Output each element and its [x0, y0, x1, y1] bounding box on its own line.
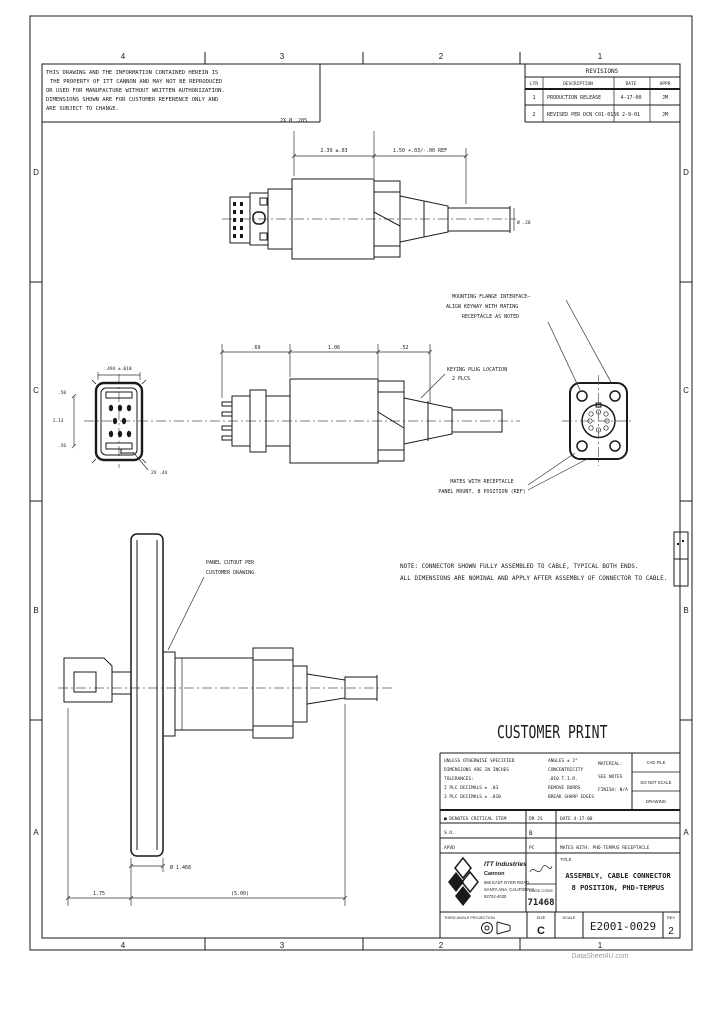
- material-line: FINISH: N/A: [598, 787, 628, 793]
- approval-rows: ■ DENOTES CRITICAL ITEM DR JS DATE 4-17-…: [444, 816, 650, 851]
- middle-view: .494 ±.010 .50 1.13 .56 2X .44: [53, 294, 634, 495]
- dim-1: .69: [251, 345, 260, 351]
- side-cell: CAD FILE: [647, 760, 666, 765]
- company-address: SANTA ANA, CALIFORNIA: [484, 887, 535, 892]
- face-dim-height: 1.13: [53, 418, 64, 424]
- tol-line: DIMENSIONS ARE IN INCHES: [444, 767, 509, 773]
- rev-date: 2-9-01: [622, 112, 640, 118]
- dim-a: 2.39 ±.03: [320, 148, 347, 154]
- rev-header-ltr: LTR: [530, 81, 538, 87]
- cage-code-value: 71468: [527, 898, 554, 908]
- face-dim-bot: .56: [58, 443, 66, 449]
- callout-line: 2 PLCS: [452, 376, 470, 382]
- dim-left: 1.75: [93, 891, 105, 897]
- row-cell: B: [529, 830, 533, 837]
- bottom-view: PANEL CUTOUT PER CUSTOMER DRAWING Ø 1.46…: [58, 534, 392, 906]
- panel-callout: PANEL CUTOUT PER CUSTOMER DRAWING: [168, 560, 255, 650]
- rev-value: 2: [668, 926, 674, 937]
- company-block: ITT Industries Cannon 666 EAST DYER ROAD…: [484, 861, 535, 899]
- title-block: UNLESS OTHERWISE SPECIFIED DIMENSIONS AR…: [440, 753, 680, 938]
- cable-dim: Ø .28: [517, 219, 531, 226]
- rev-header-date: DATE: [626, 81, 637, 87]
- company-name: ITT Industries: [484, 861, 527, 868]
- callout-line: MATES WITH RECEPTACLE: [450, 479, 513, 485]
- drawing-number: E2001-0029: [590, 920, 656, 933]
- cage-code-label: CAGE CODE: [529, 888, 553, 893]
- tol-line: REMOVE BURRS: [548, 785, 581, 791]
- flange-view: [562, 375, 634, 466]
- zone-left-a: A: [33, 828, 39, 837]
- callout-line: MOUNTING FLANGE INTERFACE—: [452, 294, 531, 300]
- drawing-title-line: 8 POSITION, PHD-TEMPUS: [572, 884, 665, 892]
- scale-label: SCALE: [562, 915, 575, 920]
- revisions-title: REVISIONS: [586, 68, 619, 75]
- drawing-title-line: ASSEMBLY, CABLE CONNECTOR: [565, 872, 671, 880]
- third-angle-projection-icon: [482, 922, 511, 934]
- callout-line: CUSTOMER DRAWING: [206, 570, 254, 576]
- signature-scribble: [530, 865, 552, 872]
- zone-bottom-1: 1: [598, 941, 603, 950]
- title-label: TITLE: [560, 857, 572, 862]
- rev-header-appr: APPR: [660, 81, 671, 87]
- projection-label: THIRD ANGLE PROJECTION: [444, 916, 495, 920]
- zone-left-c: C: [33, 386, 39, 395]
- mating-callout: MATES WITH RECEPTACLE PANEL MOUNT, 8 POS…: [438, 453, 589, 495]
- dim-b: 1.50 +.03/-.00 REF: [393, 148, 447, 154]
- company-address: 92702-4030: [484, 894, 507, 899]
- tol-line: TOLERANCES:: [444, 776, 474, 782]
- face-dim-width: .494 ±.010: [104, 366, 131, 372]
- row-cell: APVD: [444, 845, 455, 851]
- tol-line: ANGLES ± 2°: [548, 758, 578, 764]
- scan-watermark: DataSheet4U.com: [571, 953, 628, 960]
- revision-row: 2 REVISED PER DCN C01-0156 2-9-01 JM: [532, 112, 668, 118]
- customer-print-text: CUSTOMER PRINT: [497, 721, 608, 743]
- row-cell: PC: [529, 845, 535, 851]
- zone-right-c: C: [683, 386, 689, 395]
- zone-bottom-3: 3: [280, 941, 285, 950]
- general-notes: NOTE: CONNECTOR SHOWN FULLY ASSEMBLED TO…: [400, 563, 667, 582]
- rev-description: REVISED PER DCN C01-0156: [547, 112, 619, 118]
- company-address: 666 EAST DYER ROAD: [484, 880, 529, 885]
- tol-line: .010 T.I.R.: [548, 776, 578, 782]
- note-line: ARE SUBJECT TO CHANGE.: [46, 106, 119, 112]
- proprietary-note-box: THIS DRAWING AND THE INFORMATION CONTAIN…: [42, 64, 320, 122]
- zone-right-b: B: [683, 606, 688, 615]
- zone-left-b: B: [33, 606, 38, 615]
- rev-date: 4-17-00: [620, 95, 641, 101]
- tol-line: BREAK SHARP EDGES: [548, 794, 594, 800]
- zone-bottom-2: 2: [439, 941, 444, 950]
- callout-line: PANEL CUTOUT PER: [206, 560, 255, 566]
- dim-flange: Ø 1.468: [170, 864, 191, 871]
- zone-right-d: D: [683, 168, 689, 177]
- zone-top-2: 2: [439, 52, 444, 61]
- callout-line: PANEL MOUNT, 8 POSITION (REF): [438, 489, 525, 495]
- size-label: SIZE: [537, 915, 546, 920]
- tolerance-block: UNLESS OTHERWISE SPECIFIED DIMENSIONS AR…: [444, 758, 672, 804]
- rev-ltr: 1: [532, 95, 535, 101]
- dim-3: .52: [399, 345, 408, 351]
- dim-length: (5.00): [231, 891, 249, 897]
- note-line: THE PROPERTY OF ITT CANNON AND MAY NOT B…: [50, 79, 222, 85]
- revisions-table: REVISIONS LTR DESCRIPTION DATE APPR 1 PR…: [525, 64, 680, 122]
- note-line: THIS DRAWING AND THE INFORMATION CONTAIN…: [46, 70, 218, 76]
- material-line: MATERIAL:: [598, 761, 622, 767]
- rev-header-description: DESCRIPTION: [563, 81, 593, 87]
- rev-label: REV: [667, 915, 676, 920]
- revision-row: 1 PRODUCTION RELEASE 4-17-00 JM: [532, 95, 668, 101]
- general-note-line: NOTE: CONNECTOR SHOWN FULLY ASSEMBLED TO…: [400, 563, 638, 570]
- note-line: OR USED FOR MANUFACTURE WITHOUT WRITTEN …: [46, 88, 225, 94]
- hole-callout: 2X Ø .205: [280, 117, 307, 124]
- flange-callout: MOUNTING FLANGE INTERFACE— ALIGN KEYWAY …: [446, 294, 612, 390]
- company-logo: [448, 858, 478, 906]
- tol-line: 2 PLC DECIMALS ± .03: [444, 785, 498, 791]
- size-value: C: [537, 925, 545, 937]
- side-cell: DO NOT SCALE: [640, 780, 671, 785]
- rev-description: PRODUCTION RELEASE: [547, 95, 601, 101]
- row-cell: DATE 4-17-00: [560, 816, 593, 822]
- rev-appr: JM: [662, 112, 668, 118]
- dim-2: 1.06: [328, 345, 340, 351]
- tol-line: CONCENTRICITY: [548, 767, 584, 773]
- zone-bottom-4: 4: [121, 941, 126, 950]
- row-cell: MATES WITH: PHD-TEMPUS RECEPTACLE: [560, 845, 650, 851]
- row-cell: ■ DENOTES CRITICAL ITEM: [444, 816, 507, 822]
- drawing-sheet: 4 3 2 1 4 3 2 1 D C B A D C B A THIS DRA…: [0, 0, 720, 1012]
- callout-line: RECEPTACLE AS NOTED: [462, 314, 519, 320]
- face-dim-latch: 2X .44: [151, 470, 168, 476]
- zone-left-d: D: [33, 168, 39, 177]
- note-line: DIMENSIONS SHOWN ARE FOR CUSTOMER REFERE…: [46, 97, 218, 103]
- drawing-canvas: 4 3 2 1 4 3 2 1 D C B A D C B A THIS DRA…: [0, 0, 720, 1012]
- margin-boxes: [674, 532, 688, 586]
- callout-line: ALIGN KEYWAY WITH MATING: [446, 304, 518, 310]
- side-cell: DRAWING: [646, 799, 666, 804]
- keying-callout: KEYING PLUG LOCATION 2 PLCS: [421, 367, 507, 398]
- zone-right-a: A: [683, 828, 689, 837]
- side-view: .69 1.06 .52: [220, 344, 502, 463]
- zone-top-3: 3: [280, 52, 285, 61]
- general-note-line: ALL DIMENSIONS ARE NOMINAL AND APPLY AFT…: [400, 575, 667, 582]
- tol-line: UNLESS OTHERWISE SPECIFIED: [444, 758, 515, 764]
- customer-print-stamp: CUSTOMER PRINT: [497, 721, 608, 743]
- face-dim-top: .50: [58, 390, 66, 396]
- row-cell: DR JS: [529, 816, 543, 822]
- rev-ltr: 2: [532, 112, 535, 118]
- zone-top-1: 1: [598, 52, 603, 61]
- rev-appr: JM: [662, 95, 668, 101]
- tol-line: 3 PLC DECIMALS ± .010: [444, 794, 501, 800]
- top-view: 2X Ø .205 2.39 ±.03 1.50 +.03/-.00 REF Ø…: [222, 117, 531, 259]
- material-line: SEE NOTES: [598, 774, 623, 780]
- row-cell: S.O.: [444, 830, 455, 836]
- zone-top-4: 4: [121, 52, 126, 61]
- callout-line: KEYING PLUG LOCATION: [447, 367, 507, 373]
- company-division: Cannon: [484, 871, 505, 877]
